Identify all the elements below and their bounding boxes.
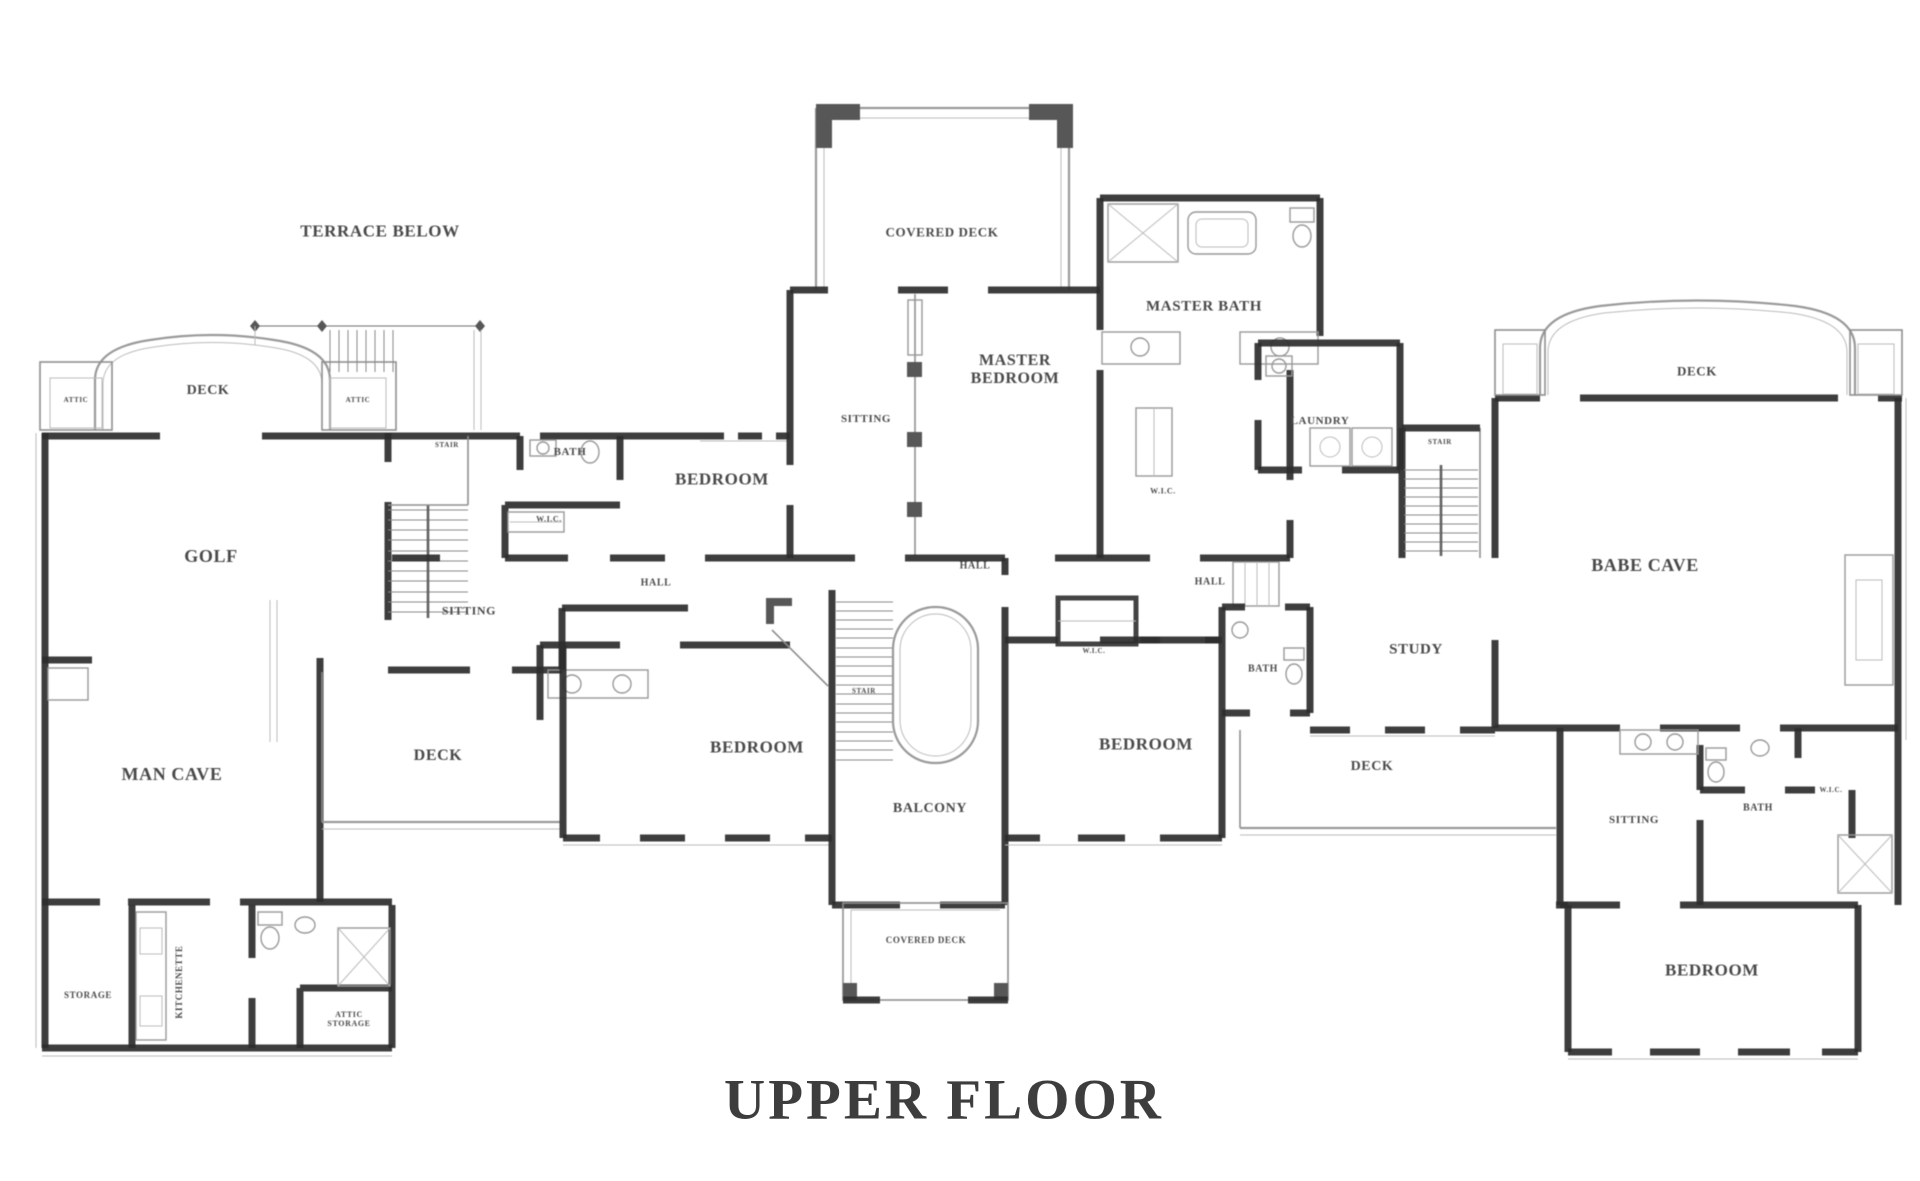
label-stair-right: STAIR xyxy=(1428,439,1452,447)
label-sitting-left: SITTING xyxy=(442,604,496,617)
label-wic-center-right: W.I.C. xyxy=(1083,648,1106,656)
label-deck-left-middle: DECK xyxy=(414,747,463,765)
label-stair-left: STAIR xyxy=(435,442,459,450)
label-terrace-below: TERRACE BELOW xyxy=(300,221,459,240)
master-wic xyxy=(1136,370,1290,558)
plan-title: UPPER FLOOR xyxy=(724,1068,1164,1133)
label-wic-master: W.I.C. xyxy=(1150,488,1176,497)
label-covered-deck-top: COVERED DECK xyxy=(885,226,998,241)
label-deck-top-right: DECK xyxy=(1677,365,1717,380)
terrace-stair-indicator xyxy=(250,320,485,430)
label-kitchenette: KITCHENETTE xyxy=(174,945,184,1018)
right-deck-arched xyxy=(1495,301,1902,396)
center-top-bath-cluster xyxy=(472,436,790,558)
floor-plan-drawing: TERRACE BELOWDECKATTICATTICGOLFSTAIRBATH… xyxy=(0,0,1920,1181)
label-wic-left: W.I.C. xyxy=(536,516,562,525)
floor-plan-walls xyxy=(0,0,1920,1181)
label-master-bath: MASTER BATH xyxy=(1146,299,1262,316)
hall-right-closet xyxy=(1100,562,1279,640)
study-and-right-deck xyxy=(1240,730,1556,835)
label-bedroom-top-left: BEDROOM xyxy=(675,469,769,488)
label-bedroom-center-left: BEDROOM xyxy=(710,737,804,756)
floor-plan-page: TERRACE BELOWDECKATTICATTICGOLFSTAIRBATH… xyxy=(0,0,1920,1181)
label-study: STUDY xyxy=(1389,642,1443,659)
covered-deck-bottom xyxy=(843,903,1008,1000)
label-storage: STORAGE xyxy=(64,990,112,1000)
label-bath-center-right: BATH xyxy=(1248,663,1278,674)
center-bedroom-top-left xyxy=(640,290,790,558)
label-master-bedroom: MASTER BEDROOM xyxy=(971,352,1060,388)
center-bedroom-left-walls xyxy=(563,590,832,845)
label-golf: GOLF xyxy=(184,546,237,566)
label-laundry: LAUNDRY xyxy=(1291,415,1350,427)
right-bedroom xyxy=(1556,905,1858,1059)
label-bath-right: BATH xyxy=(1743,802,1773,813)
label-hall-left: HALL xyxy=(641,577,672,588)
left-wing-walls xyxy=(36,433,472,1056)
label-hall-center: HALL xyxy=(960,560,991,571)
center-bedroom-right-walls xyxy=(1005,598,1222,845)
label-man-cave: MAN CAVE xyxy=(122,764,223,784)
master-bath xyxy=(1100,198,1320,364)
right-stair xyxy=(1402,428,1480,558)
laundry xyxy=(1258,343,1400,470)
left-stair xyxy=(388,436,468,618)
label-bath-left: BATH xyxy=(554,446,587,458)
center-right-bath xyxy=(1222,607,1310,713)
label-attic-storage: ATTIC STORAGE xyxy=(327,1011,370,1029)
label-sitting-master: SITTING xyxy=(841,413,891,425)
label-attic-left: ATTIC xyxy=(64,397,89,405)
covered-deck-top xyxy=(816,104,1073,290)
label-deck-top-left: DECK xyxy=(187,383,230,399)
right-wing-walls xyxy=(1495,398,1906,740)
label-balcony: BALCONY xyxy=(893,801,967,817)
label-covered-deck-bottom: COVERED DECK xyxy=(886,935,966,945)
label-sitting-right: SITTING xyxy=(1609,814,1659,826)
label-babe-cave: BABE CAVE xyxy=(1591,555,1699,575)
label-stair-center: STAIR xyxy=(852,688,876,696)
label-hall-right: HALL xyxy=(1195,576,1226,587)
label-attic-right: ATTIC xyxy=(346,397,371,405)
label-deck-right-middle: DECK xyxy=(1351,759,1394,775)
label-bedroom-center-right: BEDROOM xyxy=(1099,734,1193,753)
center-lower-bath-cluster xyxy=(540,645,790,720)
central-stair-and-balcony xyxy=(832,558,1005,905)
label-wic-right: W.I.C. xyxy=(1820,787,1843,795)
label-bedroom-bottom-right: BEDROOM xyxy=(1665,960,1759,979)
